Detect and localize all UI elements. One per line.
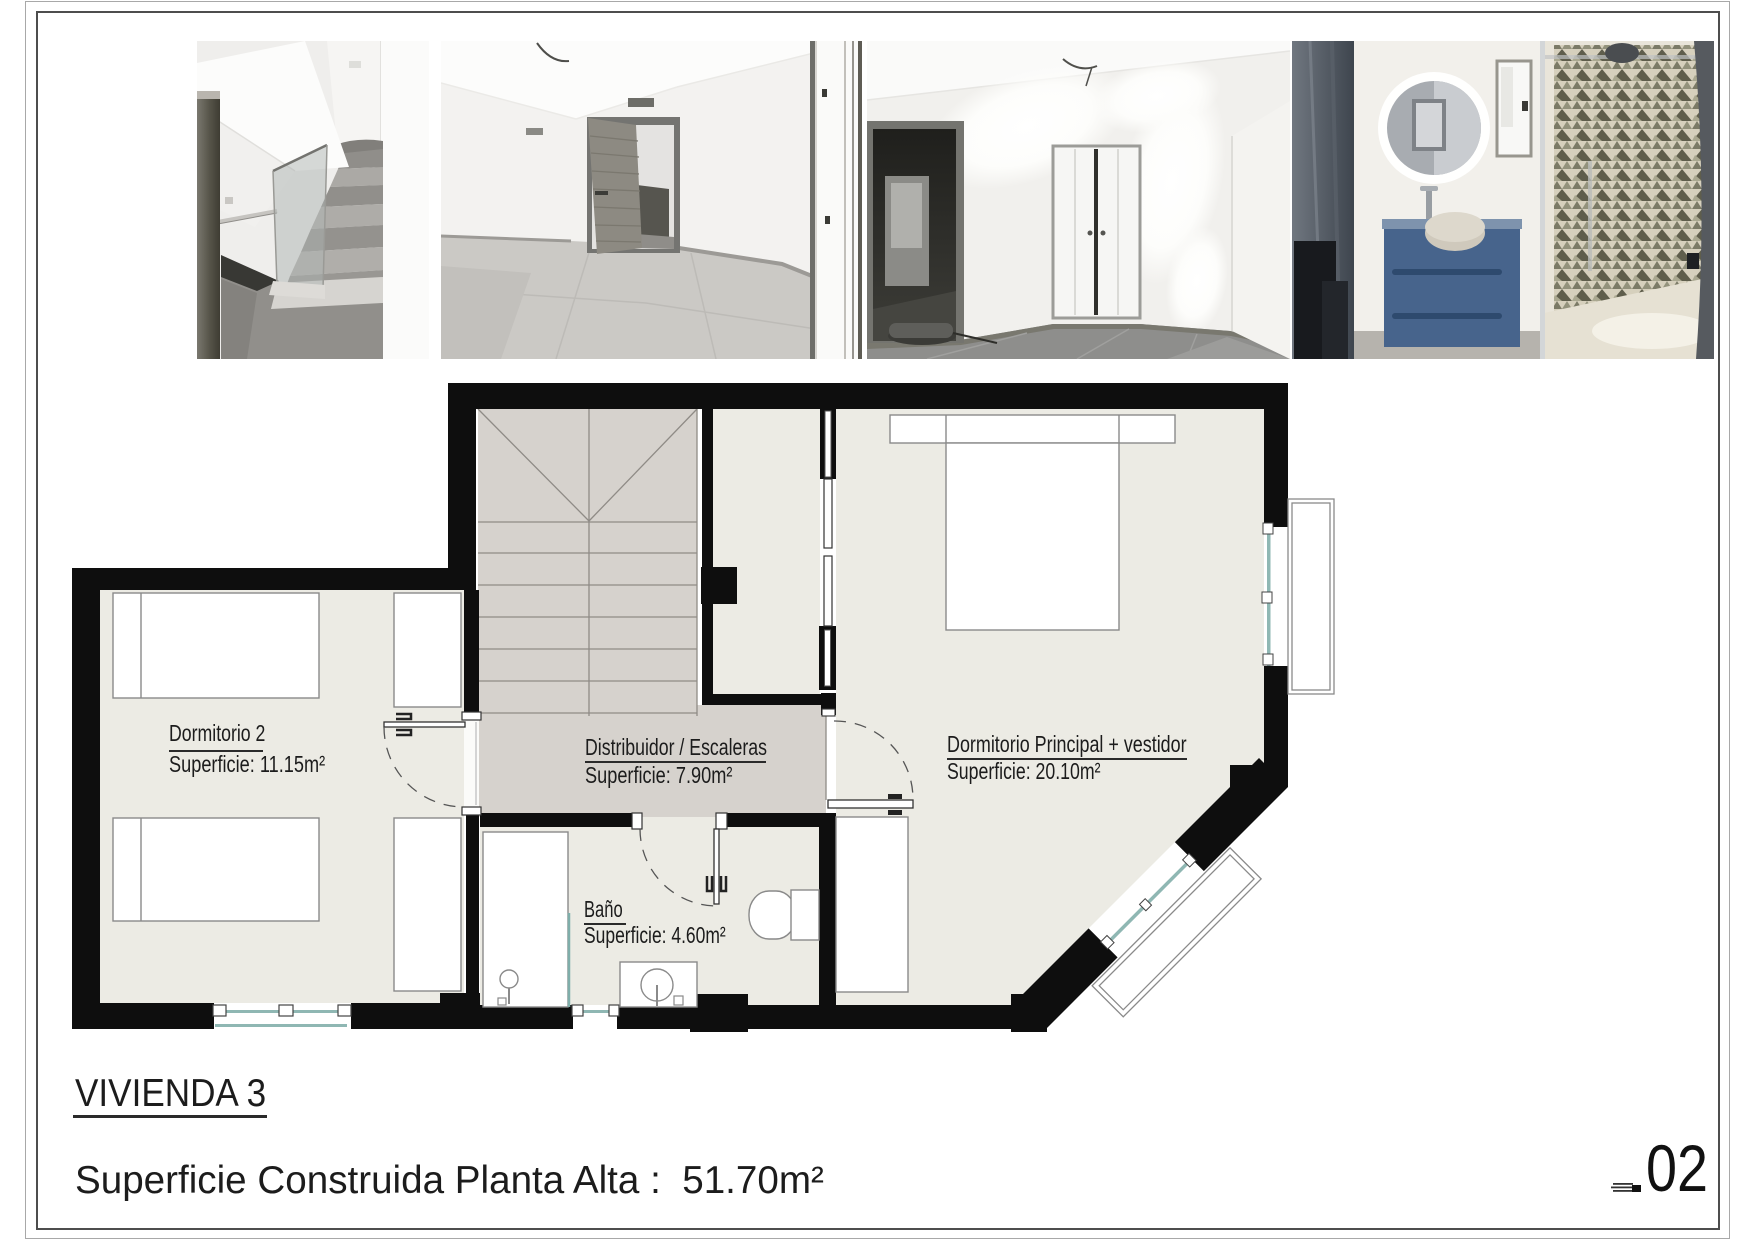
svg-text:Baño: Baño: [584, 897, 623, 922]
svg-text:VIVIENDA 3: VIVIENDA 3: [75, 1070, 266, 1114]
svg-text:Dormitorio Principal + vestido: Dormitorio Principal + vestidor: [947, 732, 1187, 758]
svg-text:02: 02: [1646, 1132, 1708, 1205]
svg-text:Superficie: 11.15m²: Superficie: 11.15m²: [169, 752, 325, 778]
svg-text:Superficie: 4.60m²: Superficie: 4.60m²: [584, 924, 726, 949]
svg-text:Dormitorio 2: Dormitorio 2: [169, 721, 265, 747]
svg-text:Superficie Construida Planta A: Superficie Construida Planta Alta : 51.7…: [75, 1159, 824, 1202]
svg-text:Superficie: 20.10m²: Superficie: 20.10m²: [947, 759, 1101, 785]
svg-text:Superficie: 7.90m²: Superficie: 7.90m²: [585, 763, 732, 789]
svg-text:Distribuidor / Escaleras: Distribuidor / Escaleras: [585, 735, 767, 761]
